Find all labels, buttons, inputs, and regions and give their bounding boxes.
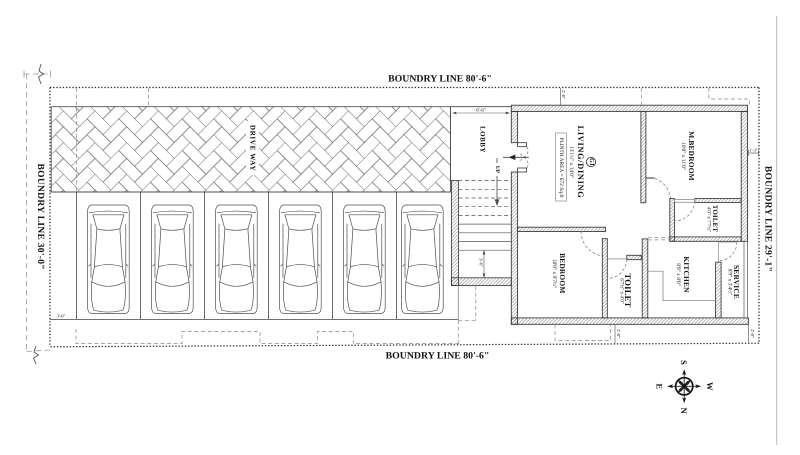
svg-text:G1: G1 — [588, 158, 594, 166]
svg-text:M.BEDROOM: M.BEDROOM — [687, 131, 696, 181]
svg-text:3'-6": 3'-6" — [479, 258, 484, 267]
svg-text:N: N — [679, 407, 689, 414]
svg-text:E: E — [655, 383, 665, 389]
svg-text:BEDROOM: BEDROOM — [558, 253, 567, 293]
svg-text:10'0" x 9'7½": 10'0" x 9'7½" — [551, 259, 557, 288]
svg-text:1'-3": 1'-3" — [749, 148, 757, 153]
svg-text:8'9" x 3'4½": 8'9" x 3'4½" — [726, 269, 732, 296]
svg-text:LOBBY: LOBBY — [479, 126, 487, 153]
svg-text:PLINTH AREA = 672 Sq.ft: PLINTH AREA = 672 Sq.ft — [558, 137, 564, 198]
svg-text:8'9" x 8'0": 8'9" x 8'0" — [675, 263, 681, 286]
svg-text:3'-0": 3'-0" — [57, 314, 66, 319]
svg-text:13'1½" x 14'0": 13'1½" x 14'0" — [568, 146, 574, 178]
svg-text:W: W — [705, 382, 715, 391]
svg-text:6'7½" x 4'0": 6'7½" x 4'0" — [619, 278, 625, 304]
svg-text:2'-0": 2'-0" — [750, 329, 755, 338]
svg-text:BOUNDRY LINE 80'-6": BOUNDRY LINE 80'-6" — [386, 351, 490, 362]
svg-text:S: S — [679, 360, 689, 365]
svg-text:BOUNDRY LINE 80'-6": BOUNDRY LINE 80'-6" — [388, 74, 492, 85]
svg-text:KITCHEN: KITCHEN — [682, 256, 691, 293]
svg-text:10'0" x 11'0": 10'0" x 11'0" — [680, 142, 686, 170]
svg-text:2'-0": 2'-0" — [561, 90, 566, 99]
svg-text:2'-0": 2'-0" — [616, 329, 621, 338]
svg-text:UP: UP — [494, 166, 500, 174]
svg-text:DRIVE WAY: DRIVE WAY — [249, 125, 257, 172]
svg-text:BOUNDRY LINE 29'-1": BOUNDRY LINE 29'-1" — [762, 166, 772, 272]
svg-text:6'-6": 6'-6" — [476, 107, 486, 113]
svg-text:4'0" x 7'7½": 4'0" x 7'7½" — [706, 207, 712, 233]
svg-text:BOUNDRY LINE 30'-0": BOUNDRY LINE 30'-0" — [35, 164, 45, 270]
svg-text:LIVING/DINING: LIVING/DINING — [576, 126, 585, 199]
